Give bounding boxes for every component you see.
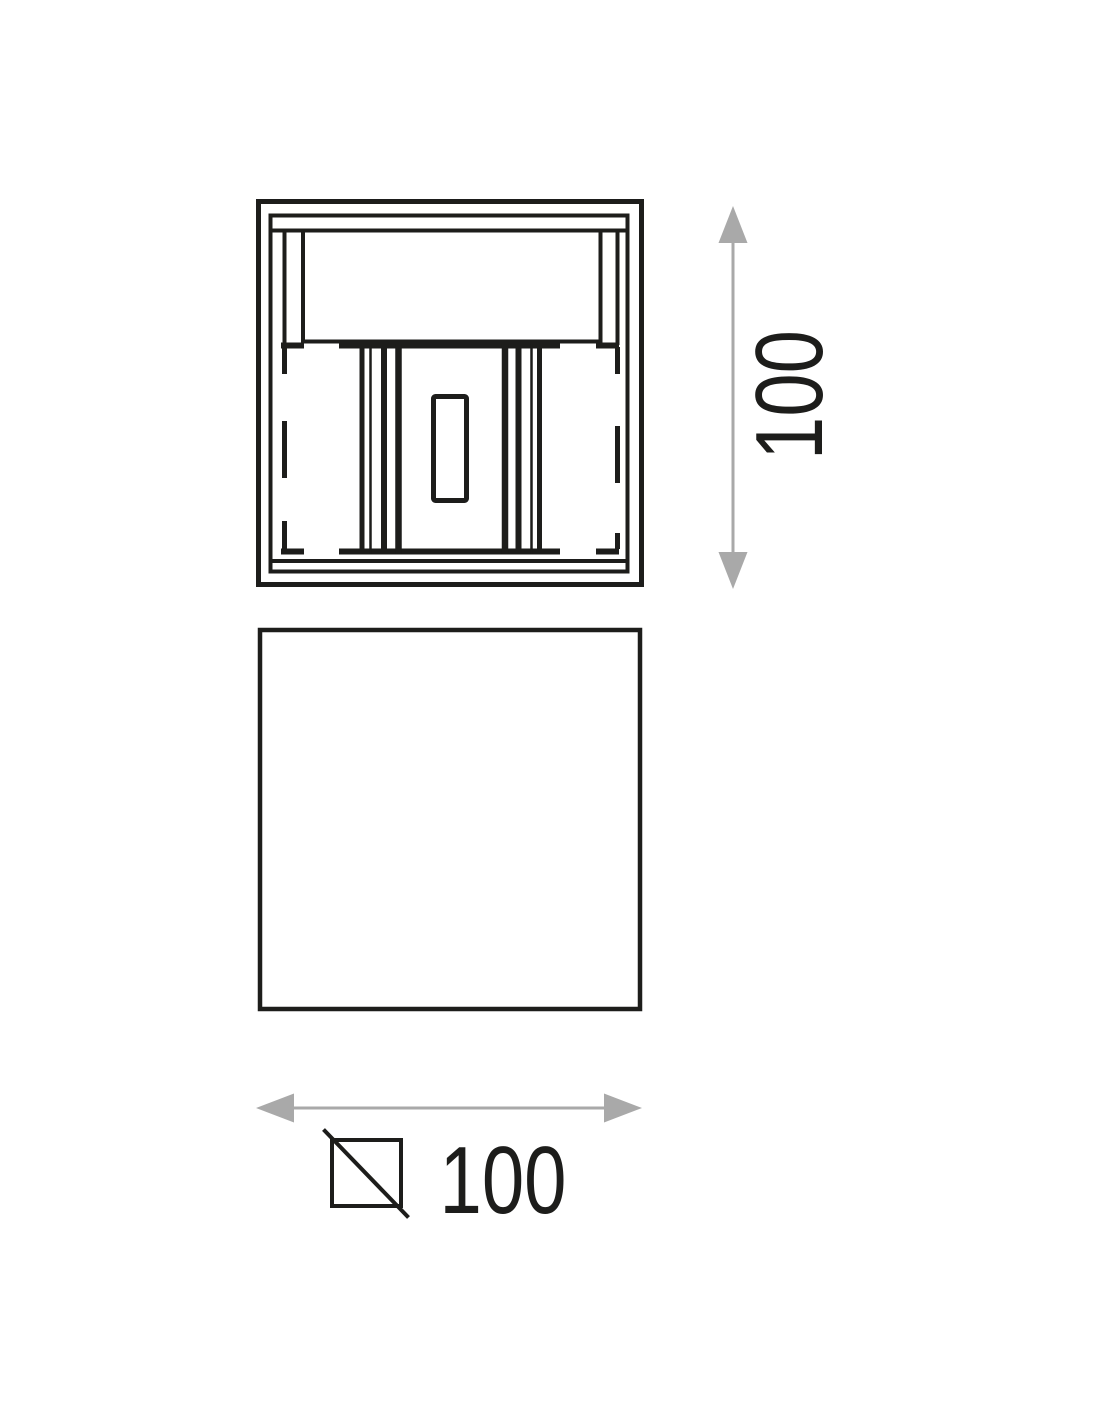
top-view-inner-square [271, 216, 628, 572]
horizontal-dimension-arrow-icon [256, 1094, 642, 1123]
top-view-drawing [259, 202, 642, 585]
technical-drawing-page: 100 100 [0, 0, 1100, 1422]
square-section-symbol-icon [324, 1130, 409, 1218]
top-view-outer-square [259, 202, 642, 585]
mounting-strips [384, 344, 519, 555]
dimension-drawing: 100 100 [0, 0, 1100, 1422]
arrowhead-right [604, 1094, 642, 1123]
central-block-walls [399, 344, 506, 555]
central-slot [434, 397, 467, 501]
front-view-drawing [260, 630, 640, 1009]
width-dimension-label: 100 [440, 1127, 567, 1234]
height-dimension-label: 100 [736, 330, 843, 460]
front-view-square [260, 630, 640, 1009]
width-dimension: 100 [256, 1094, 642, 1235]
arrowhead-up [719, 206, 748, 243]
arrowhead-left [256, 1094, 294, 1123]
panel-inner-edges [362, 344, 540, 555]
band-side-stubs [285, 231, 618, 346]
top-band [303, 231, 601, 342]
height-dimension: 100 [719, 206, 844, 589]
arrowhead-down [719, 552, 748, 589]
